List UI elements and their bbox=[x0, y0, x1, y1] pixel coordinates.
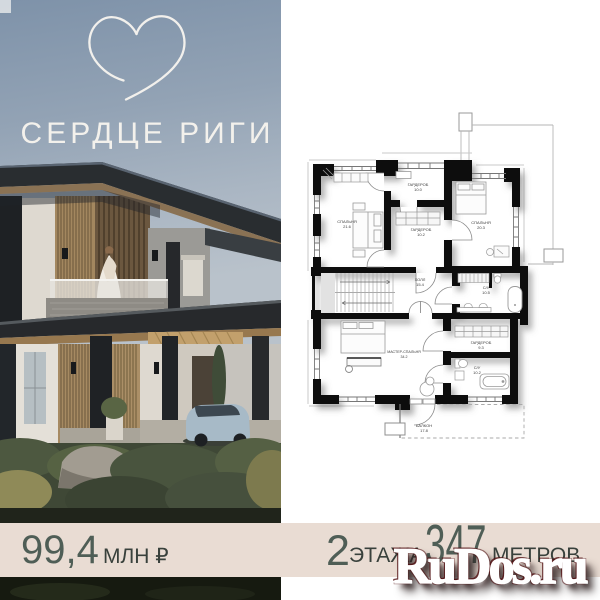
svg-text:10.2: 10.2 bbox=[417, 232, 426, 237]
svg-text:20.3: 20.3 bbox=[477, 225, 486, 230]
svg-text:21.6: 21.6 bbox=[343, 224, 352, 229]
svg-text:10.0: 10.0 bbox=[414, 187, 423, 192]
svg-text:34.2: 34.2 bbox=[401, 355, 408, 359]
svg-text:10.2: 10.2 bbox=[473, 370, 482, 375]
svg-text:15.4: 15.4 bbox=[416, 282, 425, 287]
svg-text:10.5: 10.5 bbox=[482, 290, 491, 295]
svg-text:МАСТЕР-СПАЛЬНЯ: МАСТЕР-СПАЛЬНЯ bbox=[387, 350, 421, 354]
svg-text:17.8: 17.8 bbox=[420, 428, 429, 433]
svg-text:9.3: 9.3 bbox=[478, 345, 484, 350]
